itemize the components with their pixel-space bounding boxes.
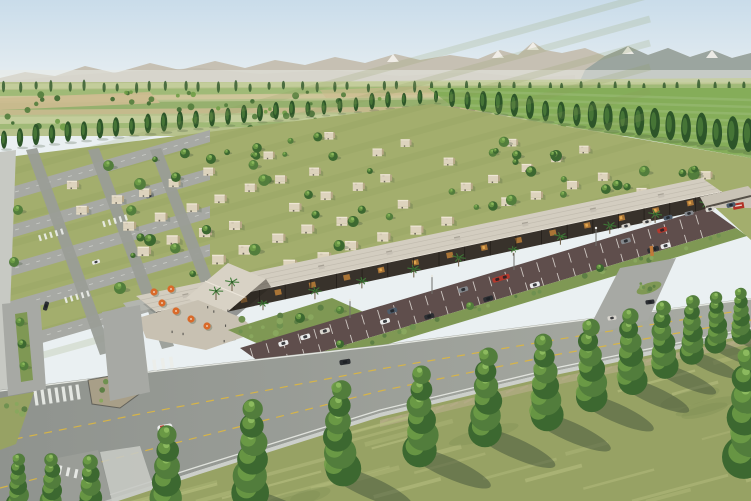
scene-canvas: [0, 0, 751, 501]
aerial-rendering: [0, 0, 751, 501]
